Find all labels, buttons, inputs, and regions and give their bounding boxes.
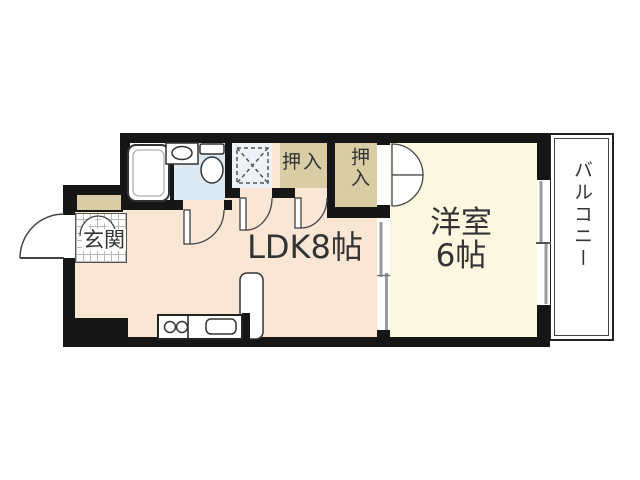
closet2-label: 押入	[346, 147, 368, 207]
balcony-label: バルコニー	[567, 160, 591, 325]
genkan-label: 玄関	[82, 229, 126, 251]
western-room-label-line2: 6帖	[400, 240, 522, 273]
closet1-door-arc	[301, 198, 327, 228]
ldk-label: LDK8帖	[215, 231, 395, 265]
kitchen-sink	[206, 319, 236, 334]
closet2-door-fan-upper	[392, 144, 423, 175]
kitchen-wall-stub	[242, 313, 250, 340]
toilet-bowl	[201, 157, 223, 183]
western-room-label-line1: 洋室	[400, 207, 522, 240]
bathroom-door-leaf	[184, 210, 190, 244]
toilet-tank	[200, 144, 224, 154]
floor-plan: LDK8帖 洋室 6帖 玄関 押入 押入 バルコニー	[0, 0, 640, 480]
bathtub	[128, 145, 169, 201]
closet1-door-leaf	[295, 198, 301, 228]
washing-space-door-arc	[246, 198, 272, 230]
wash-basin	[172, 147, 192, 160]
washing-space-door-leaf	[240, 198, 246, 230]
closet2-door-fan-lower	[392, 175, 423, 206]
entrance-door-arc	[20, 214, 64, 258]
closet1-label: 押入	[276, 153, 330, 173]
